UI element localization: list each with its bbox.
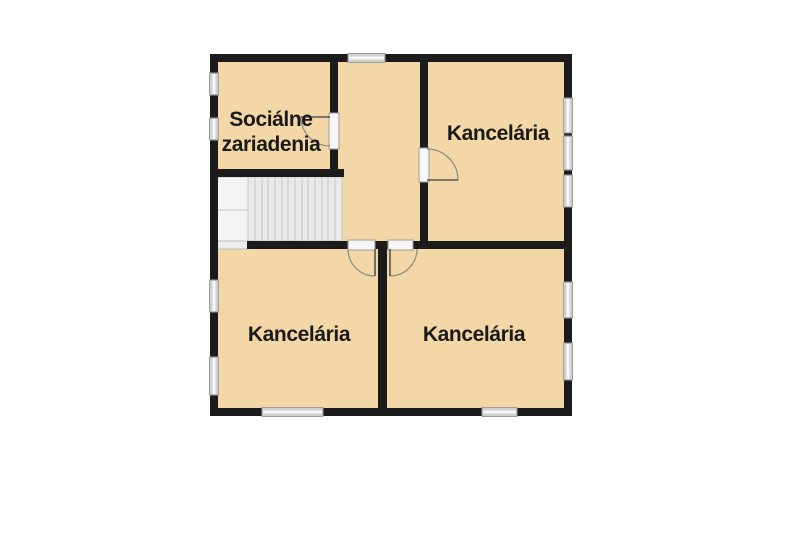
stair-open-edge xyxy=(216,241,248,249)
room-label-kancelaria-bottom-left: Kancelária xyxy=(248,323,351,346)
room-label: Sociálne xyxy=(229,108,312,131)
room-label-kancelaria-top-right: Kancelária xyxy=(447,122,550,145)
wall-segment xyxy=(210,169,344,177)
window xyxy=(564,175,573,207)
wall-segment xyxy=(330,58,338,114)
window xyxy=(210,280,219,312)
window xyxy=(210,357,219,395)
window xyxy=(564,98,573,133)
room-label-kancelaria-bottom-right: Kancelária xyxy=(423,323,526,346)
floor-plan-page: Sociálne zariadenia Kancelária Kancelári… xyxy=(0,0,800,533)
window xyxy=(482,408,517,417)
stair-landing xyxy=(217,177,248,241)
window xyxy=(564,282,573,318)
window xyxy=(348,54,385,63)
wall-segment xyxy=(420,58,428,148)
floor-plan-canvas: Sociálne zariadenia Kancelária Kancelári… xyxy=(0,0,800,533)
window xyxy=(564,343,573,380)
window xyxy=(210,118,219,140)
window xyxy=(564,136,573,170)
room-label: zariadenia xyxy=(222,133,321,156)
window xyxy=(262,408,323,417)
window xyxy=(210,73,219,95)
wall-segment xyxy=(330,149,338,177)
staircase xyxy=(216,177,342,249)
wall-segment xyxy=(420,182,428,245)
wall-segment xyxy=(210,54,572,62)
wall-segment xyxy=(378,243,387,408)
